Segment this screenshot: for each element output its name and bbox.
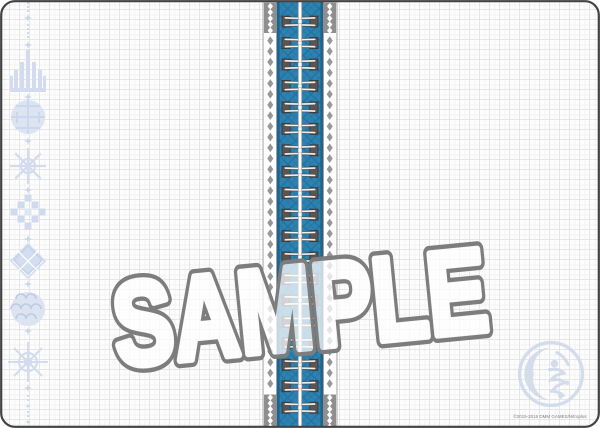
svg-text:©2015-2016 DMM GAMES/Nitroplus: ©2015-2016 DMM GAMES/Nitroplus <box>513 413 587 419</box>
